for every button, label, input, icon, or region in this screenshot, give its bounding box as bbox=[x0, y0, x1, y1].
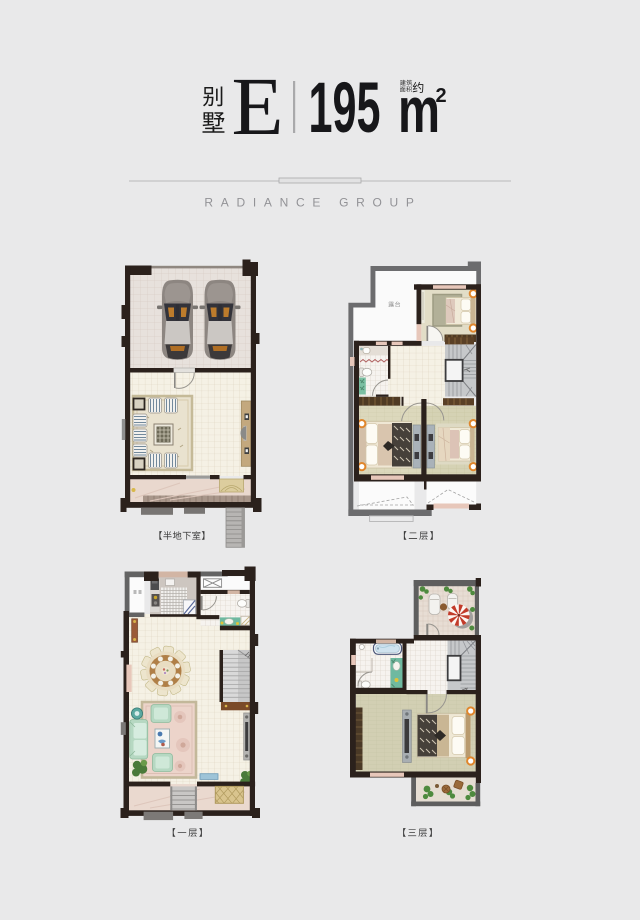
svg-text:m: m bbox=[398, 74, 440, 146]
svg-text:RADIANCE GROUP: RADIANCE GROUP bbox=[204, 196, 421, 210]
svg-text:E: E bbox=[232, 60, 284, 152]
svg-text:2: 2 bbox=[436, 85, 447, 107]
svg-text:195: 195 bbox=[309, 69, 381, 148]
